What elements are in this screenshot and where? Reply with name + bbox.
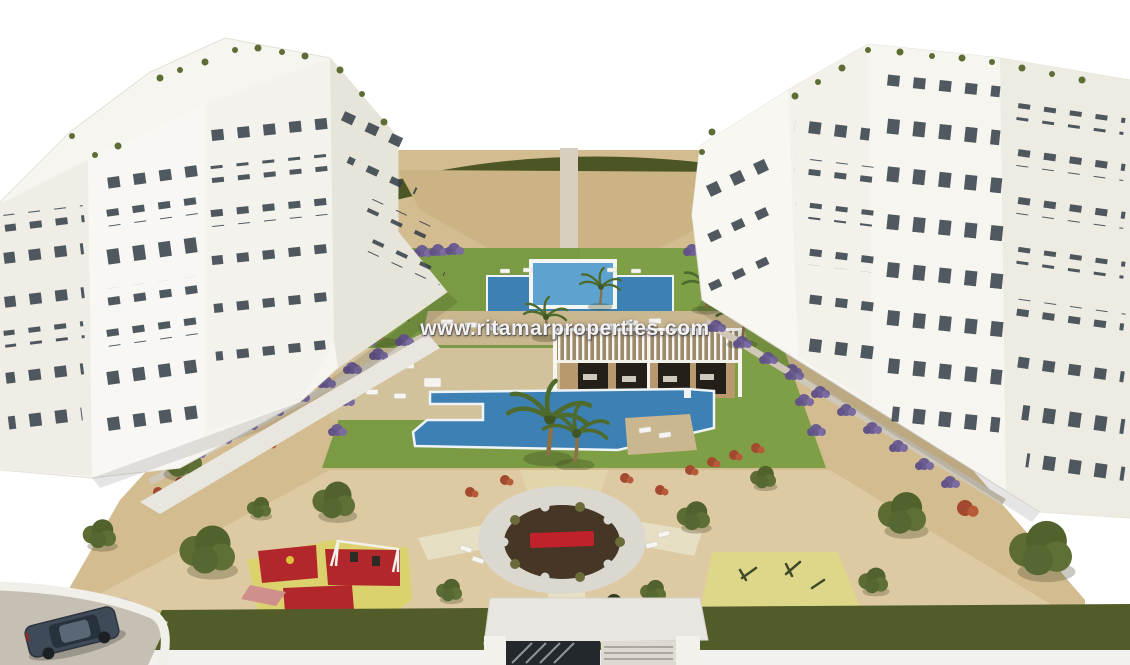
swing-seat	[350, 552, 358, 562]
lounger	[626, 321, 638, 326]
gate-pillar	[484, 636, 506, 665]
property-aerial-render: www.ritamarproperties.com	[0, 0, 1130, 665]
lounger	[663, 376, 677, 382]
lounger	[602, 324, 614, 329]
fitness-area	[700, 552, 862, 612]
lounger	[441, 320, 453, 325]
gate-canopy	[484, 598, 708, 644]
lounger	[622, 376, 636, 382]
spring-rider	[286, 556, 294, 564]
swing-seat	[372, 556, 380, 566]
red-bench	[530, 531, 594, 548]
main-pool-area	[413, 388, 714, 455]
lounger	[465, 323, 477, 328]
gate-pillar	[676, 636, 700, 665]
lounger	[649, 319, 661, 324]
lounger	[607, 268, 617, 272]
playground	[241, 540, 412, 612]
dune-path	[560, 148, 578, 262]
fitness-mat	[700, 552, 862, 612]
pool-ladder	[684, 388, 691, 398]
lounger	[583, 374, 597, 380]
daybed	[424, 378, 441, 387]
red-mat-b	[283, 585, 354, 612]
lounger	[489, 326, 501, 331]
pergola-column	[647, 332, 650, 396]
lounger	[523, 268, 533, 272]
pergola-pavilion	[553, 328, 742, 398]
lounger	[394, 394, 406, 399]
gate-dark	[506, 641, 600, 665]
red-mat-a	[258, 545, 318, 583]
lounger	[700, 374, 714, 380]
lounger	[500, 269, 510, 273]
lounger	[631, 269, 641, 273]
entrance-gate	[484, 594, 708, 665]
